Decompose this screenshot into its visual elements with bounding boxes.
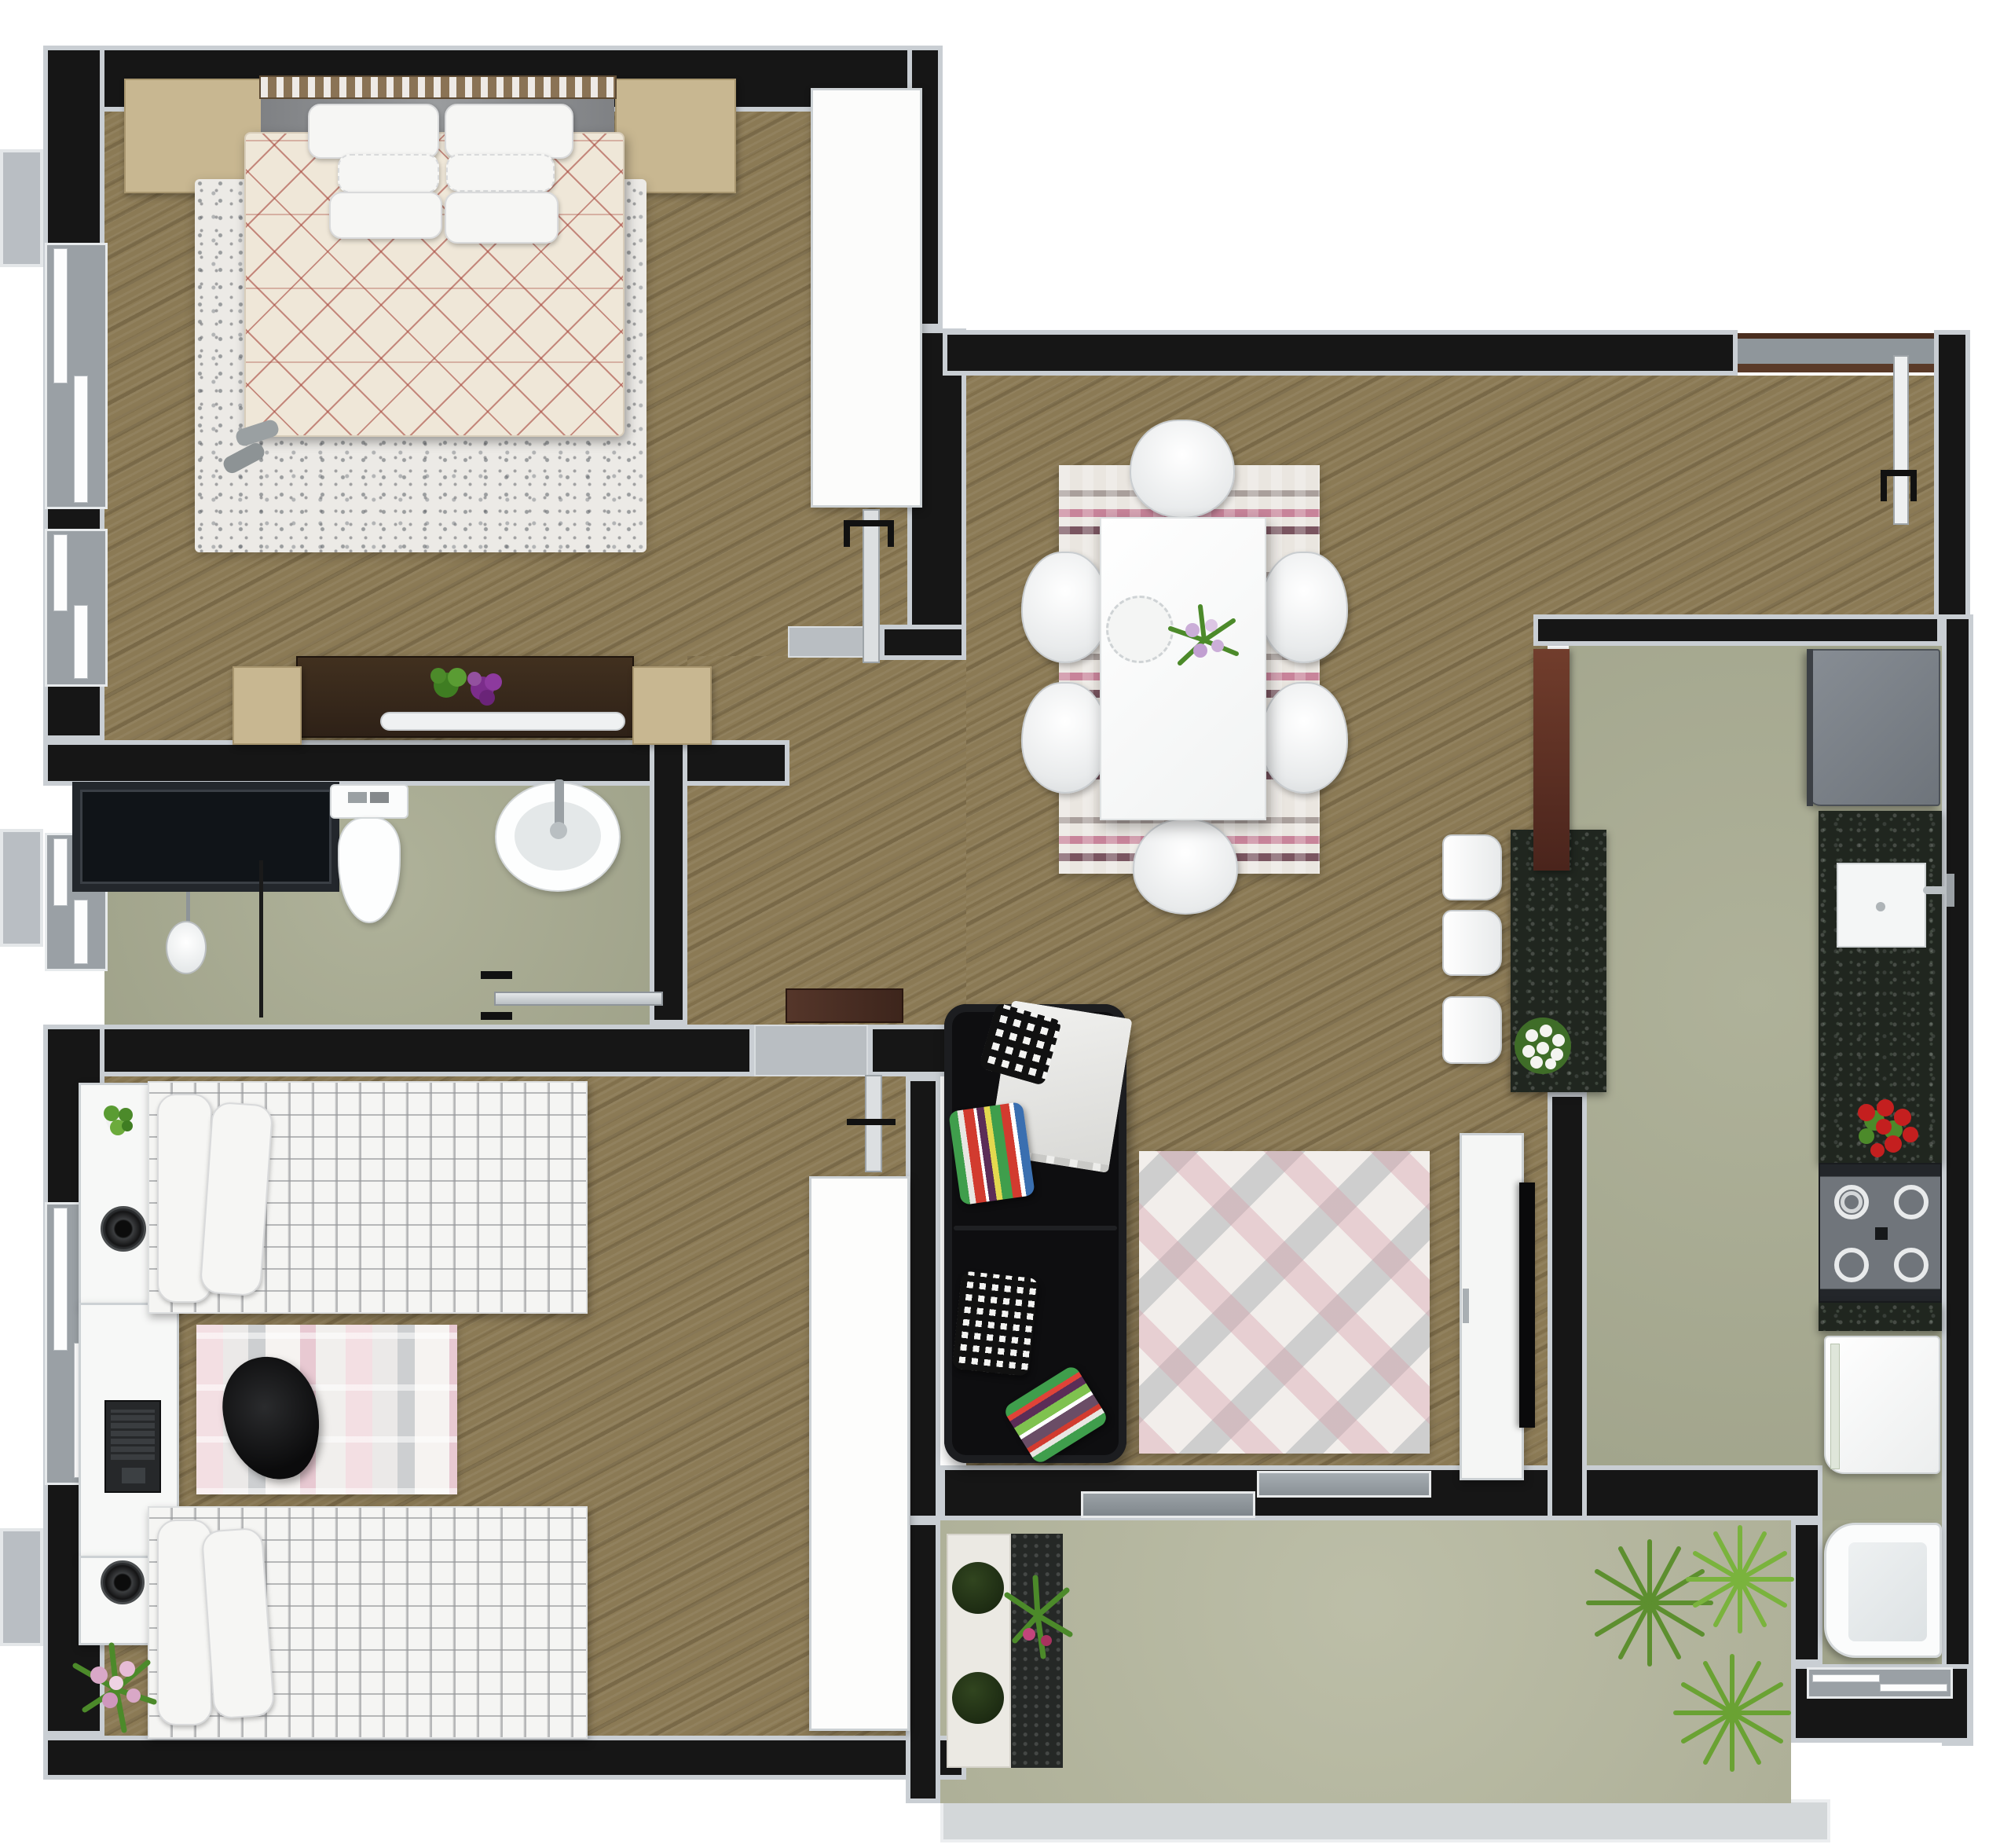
nightstand-right (615, 79, 736, 193)
bed-pillow-4 (446, 154, 555, 192)
dining-chair-bottom (1133, 819, 1238, 915)
wall-balcony-left (906, 1520, 940, 1803)
bed-pillow-1 (308, 104, 439, 159)
kitchen-door (1533, 649, 1570, 871)
dining-chair-right-1 (1260, 552, 1348, 663)
bed-pillow-3 (338, 154, 439, 193)
bedroom-door-handle-2 (844, 520, 850, 547)
bed-headboard (259, 75, 617, 99)
bed-pillow-2 (445, 104, 573, 159)
shower-pendant-stem (186, 892, 190, 925)
speaker-2 (101, 1560, 145, 1604)
kids-plant-pot (86, 1088, 149, 1151)
bathroom-open-door (786, 988, 903, 1023)
wardrobe-closet (811, 88, 922, 508)
bed-pillow-6 (445, 192, 559, 244)
kitchen-faucet-base (1947, 874, 1954, 907)
wall-bathroom-right (650, 740, 687, 1025)
dining-chair-top (1130, 420, 1235, 519)
bedroom-door-leaf (863, 509, 880, 663)
bedroom-door-handle (844, 520, 894, 526)
exterior-stub-1 (0, 149, 43, 267)
wall-kids-living-right (906, 1076, 940, 1520)
toilet-tank (330, 784, 408, 819)
bed-pillow-5 (329, 192, 442, 239)
pink-plant (995, 1568, 1081, 1670)
dresser-flowers (416, 658, 526, 721)
shower-head (166, 921, 207, 974)
kids-door-handle (847, 1119, 896, 1125)
tv-stand (1460, 1133, 1524, 1480)
shower-box (72, 782, 339, 892)
bathroom-sliding-door-bar (494, 992, 663, 1006)
washing-machine (1824, 1336, 1940, 1474)
toilet-button-2 (370, 792, 389, 803)
bathroom-faucet-head (550, 822, 567, 839)
tv (1519, 1182, 1535, 1428)
stool-left (233, 666, 302, 745)
laptop (104, 1400, 161, 1493)
bedroom-door-handle-3 (888, 520, 894, 547)
floor-plan (0, 0, 2011, 1848)
sliding-door-pane-1 (1081, 1491, 1255, 1518)
bathroom-faucet (555, 779, 564, 828)
bedroom-window-1 (45, 243, 108, 509)
wall-dining-top (943, 330, 1738, 376)
speaker-1 (101, 1206, 146, 1252)
wall-bath-kids-left (43, 1025, 754, 1076)
wall-kids-bottom (43, 1736, 966, 1780)
entry-door-leaf (1893, 355, 1909, 525)
fridge-hinge (1807, 649, 1813, 806)
exterior-stub-3 (0, 1528, 43, 1646)
tv-stand-handle (1463, 1289, 1469, 1323)
wall-kitchen-right (1942, 614, 1973, 1746)
wall-kitchen-top (1533, 614, 1942, 646)
fridge (1807, 649, 1940, 806)
nightstand-left (124, 79, 262, 193)
bar-stool-3 (1442, 996, 1502, 1064)
toilet-button-1 (348, 792, 367, 803)
bedroom-window-2 (45, 529, 108, 687)
kids-flower-pot (61, 1634, 171, 1744)
entry-door-handle-3 (1881, 470, 1917, 476)
table-flowers (1161, 597, 1247, 684)
dining-chair-right-2 (1260, 682, 1348, 794)
bar-stool-1 (1442, 834, 1502, 900)
counter-strip (1819, 1303, 1942, 1331)
hallway-floor (687, 656, 966, 1025)
sofa-cushion-split (954, 1226, 1117, 1230)
bathroom-door-bracket-2 (481, 1012, 512, 1020)
wall-dining-right (1934, 330, 1970, 629)
wall-bedroom-door-jog (880, 625, 966, 660)
bathroom-door-bracket-1 (481, 971, 512, 979)
dining-chair-left-1 (1021, 552, 1109, 663)
checkered-pillow-2 (952, 1270, 1039, 1377)
kids-wardrobe (809, 1176, 910, 1731)
stool-right (632, 666, 712, 745)
exterior-stub-2 (0, 829, 43, 947)
striped-pillow-1 (948, 1102, 1035, 1205)
kids-door-threshold (754, 1025, 868, 1076)
balcony-deck-edge (940, 1799, 1830, 1842)
dining-chair-left-2 (1021, 682, 1109, 794)
red-flowers (1843, 1089, 1925, 1161)
bed-bottom-pillow-2 (201, 1527, 276, 1720)
boxwood-ball-2 (952, 1672, 1004, 1724)
gas-stove (1819, 1163, 1942, 1303)
laundry-window (1807, 1667, 1953, 1699)
bar-stool-2 (1442, 910, 1502, 976)
yucca-plants (1571, 1524, 1807, 1791)
white-bouquet (1510, 1014, 1576, 1078)
kitchen-sink (1837, 863, 1926, 948)
laundry-tub (1824, 1523, 1942, 1658)
living-diamond-rug (1139, 1151, 1430, 1454)
shower-glass-partition (259, 860, 263, 1017)
wall-kitchen-divider (1548, 1092, 1587, 1520)
sliding-door-pane-2 (1257, 1471, 1431, 1498)
